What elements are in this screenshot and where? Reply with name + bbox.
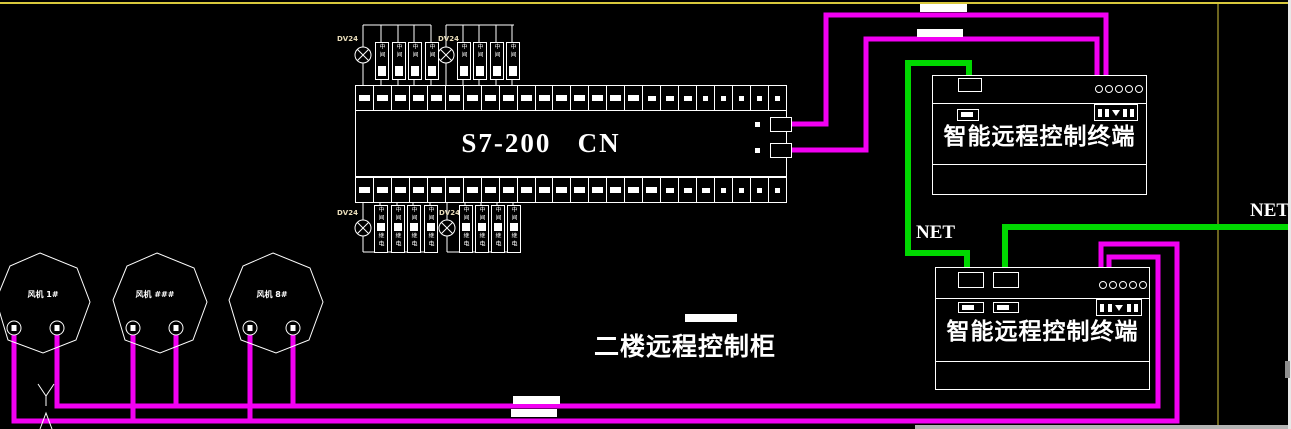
terminal-mark [721,96,726,101]
relay-glyph: 间 [461,52,467,59]
fan-terminal-pin [248,325,253,331]
terminal-cell [553,86,571,110]
plc-indicator-dot [755,122,760,127]
remote-terminal-box-2: 智能远程控制终端 [935,267,1150,390]
terminal-mark [666,96,674,101]
relay-glyph: 中 [411,207,417,214]
terminal-mark [556,95,567,101]
wire-tag [513,396,560,404]
relay-window [410,223,418,231]
relay-module: 中间继电 [391,205,405,253]
cabinet-title: 二楼远程控制柜 [575,327,795,363]
relay-window [493,66,501,76]
terminal-cell [571,178,589,202]
terminal-mark [521,187,532,193]
relay-module: 中间继电 [475,205,489,253]
relay-glyph: 电 [511,241,517,248]
relay-glyph: 间 [428,215,434,222]
terminal-mark [775,96,780,101]
relay-glyph: 中 [412,44,418,51]
plc-terminal-strip-top [355,85,787,111]
terminal-cell [571,86,589,110]
arrow-down-icon [1115,305,1123,311]
terminal-mark [467,95,478,101]
relay-glyph: 间 [511,215,517,222]
relay-module: 中间 [408,42,422,80]
terminal-mark [592,95,603,101]
terminal-cell [751,178,769,202]
net-port-2 [993,272,1019,288]
plc-comm-port-1 [770,117,792,132]
terminal-mark [574,187,585,193]
terminal-mark [503,95,514,101]
wire-mark-y-right [46,384,54,396]
terminal-mark [539,95,550,101]
terminal-cell [697,178,715,202]
terminal-cell [607,178,625,202]
terminal-mark [757,188,762,193]
terminal-cell [643,86,661,110]
relay-glyph: 中 [479,207,485,214]
terminal-mark [648,96,656,101]
relay-window [377,223,385,231]
connector-ring [1099,281,1107,289]
terminal-cell [625,178,643,202]
relay-module: 中间 [490,42,504,80]
terminal-mark [521,95,532,101]
relay-glyph: 继 [463,233,469,240]
terminal-mark [739,96,744,101]
relay-glyph: 间 [495,215,501,222]
plc-terminal-strip-bottom [355,177,787,203]
dip-switch [1123,109,1127,117]
relay-glyph: 电 [378,241,384,248]
terminal-mark [646,187,657,193]
relay-glyph: 中 [477,44,483,51]
relay-glyph: 中 [495,207,501,214]
terminal-cell [643,178,661,202]
terminal-cell [715,178,733,202]
connector-ring [1129,281,1137,289]
relay-module: 中间 [392,42,406,80]
relay-glyph: 间 [411,215,417,222]
relay-glyph: 中 [429,44,435,51]
terminal-mark [666,188,674,193]
terminal-cell [733,86,751,110]
terminal-mark [485,95,496,101]
terminal-cell [446,178,464,202]
terminal-cell [769,86,786,110]
relay-window [394,223,402,231]
relay-glyph: 间 [379,52,385,59]
terminal-cell [661,178,679,202]
fan-octagon [113,253,207,353]
connector-ring [1105,85,1113,93]
terminal-cell [464,178,482,202]
divider [933,164,1146,165]
relay-module: 中间继电 [459,205,473,253]
relay-glyph: 间 [477,52,483,59]
dv24-power-label: DV24 [337,209,358,217]
terminal-mark [556,187,567,193]
terminal-cell [589,178,607,202]
relay-window [411,66,419,76]
relay-glyph: 间 [378,215,384,222]
relay-glyph: 继 [395,233,401,240]
terminal-mark [684,188,692,193]
terminal-mark [721,188,726,193]
terminal-mark [539,187,550,193]
terminal-cell [625,86,643,110]
dv24-power-label: DV24 [438,35,459,43]
relay-glyph: 间 [395,215,401,222]
terminal-cell [553,178,571,202]
dip-switch [1127,304,1131,312]
relay-glyph: 继 [378,233,384,240]
terminal-mark [413,187,424,193]
relay-glyph: 中 [461,44,467,51]
relay-glyph: 中 [463,207,469,214]
relay-module: 中间继电 [507,205,521,253]
terminal-mark [702,188,710,193]
terminal-cell [392,86,410,110]
relay-window [428,66,436,76]
dip-switch [1098,109,1102,117]
terminal-cell [518,178,536,202]
relay-glyph: 中 [379,44,385,51]
connector-ring [1139,281,1147,289]
relay-module: 中间继电 [424,205,438,253]
terminal-cell [428,178,446,202]
terminal-mark [703,96,708,101]
arrow-down-icon [1112,110,1120,116]
terminal-cell [392,178,410,202]
relay-module: 中间 [506,42,520,80]
terminal-mark [574,95,585,101]
net-port [958,78,982,92]
dip-switch [1134,304,1138,312]
connector-ring [1095,85,1103,93]
status-bar [997,305,1009,310]
relay-glyph: 继 [428,233,434,240]
plc-comm-port-2 [770,143,792,158]
fan-terminal-pin [55,325,60,331]
fan-terminal-pin [12,325,17,331]
terminal-box-1-title: 智能远程控制终端 [933,117,1146,151]
horizontal-scrollbar[interactable] [915,425,1291,429]
terminal-cell [769,178,786,202]
terminal-mark [413,95,424,101]
wire-tag [917,29,963,37]
terminal-mark [485,187,496,193]
fan-terminal-pin [131,325,136,331]
plc-indicator-dot [755,148,760,153]
terminal-mark [684,96,692,101]
relay-glyph: 电 [395,241,401,248]
terminal-mark [449,95,460,101]
relay-module: 中间 [473,42,487,80]
fan-terminal-pin [291,325,296,331]
terminal-cell [697,86,715,110]
plc-label: S7-200 CN [461,128,620,159]
status-bar [962,305,974,310]
terminal-cell [500,86,518,110]
terminal-mark [431,187,442,193]
relay-glyph: 中 [511,207,517,214]
fan-terminal-pin [174,325,179,331]
plc-module: S7-200 CN [355,110,787,177]
relay-window [427,223,435,231]
terminal-cell [715,86,733,110]
terminal-mark [592,187,603,193]
terminal-cell [410,86,428,110]
relay-glyph: 电 [428,241,434,248]
connector-ring [1125,85,1133,93]
terminal-mark [449,187,460,193]
relay-window [462,223,470,231]
net-port-1 [958,272,984,288]
dv24-power-label: DV24 [439,209,460,217]
relay-glyph: 间 [429,52,435,59]
relay-glyph: 继 [411,233,417,240]
relay-module: 中间继电 [407,205,421,253]
relay-glyph: 中 [510,44,516,51]
terminal-mark [359,187,370,193]
relay-glyph: 中 [396,44,402,51]
fan-1-label: 风机 1# [13,289,73,300]
relay-window [476,66,484,76]
relay-window [378,66,386,76]
terminal-mark [377,95,388,101]
relay-window [478,223,486,231]
terminal-box-2-title: 智能远程控制终端 [936,312,1149,346]
fan-octagon [229,253,323,353]
terminal-mark [610,187,621,193]
terminal-cell [464,86,482,110]
relay-window [460,66,468,76]
wire-mark-y-left [38,384,46,406]
scrollbar-thumb[interactable] [1285,361,1290,378]
terminal-cell [536,178,554,202]
relay-glyph: 间 [479,215,485,222]
dip-switch [1100,304,1104,312]
terminal-cell [679,178,697,202]
terminal-cell [589,86,607,110]
wire-tag [685,314,737,322]
remote-terminal-box-1: 智能远程控制终端 [932,75,1147,195]
dv24-power-label: DV24 [337,35,358,43]
fan-3-label: 风机 8# [242,289,302,300]
relay-window [395,66,403,76]
connector-ring [1115,85,1123,93]
relay-glyph: 中 [494,44,500,51]
connector-ring [1109,281,1117,289]
terminal-cell [410,178,428,202]
terminal-mark [739,188,744,193]
relay-glyph: 中 [395,207,401,214]
terminal-cell [374,178,392,202]
relay-glyph: 中 [378,207,384,214]
relay-window [510,223,518,231]
terminal-mark [431,95,442,101]
terminal-cell [374,86,392,110]
relay-module: 中间 [425,42,439,80]
connector-ring [1135,85,1143,93]
terminal-cell [500,178,518,202]
terminal-cell [518,86,536,110]
connector-ring [1119,281,1127,289]
terminal-mark [395,187,406,193]
relay-module: 中间 [457,42,471,80]
dip-switch [1105,109,1109,117]
terminal-mark [628,187,639,193]
terminal-mark [628,95,639,101]
relay-glyph: 继 [511,233,517,240]
relay-glyph: 间 [463,215,469,222]
terminal-cell [446,86,464,110]
terminal-cell [661,86,679,110]
terminal-cell [482,86,500,110]
terminal-cell [482,178,500,202]
relay-window [494,223,502,231]
fan-2-label: 风机 ### [125,289,185,300]
relay-glyph: 继 [495,233,501,240]
terminal-cell [607,86,625,110]
terminal-cell [751,86,769,110]
net-label-2: NET [1250,200,1289,222]
terminal-mark [377,187,388,193]
relay-glyph: 电 [479,241,485,248]
terminal-cell [679,86,697,110]
signal-connectors [1095,85,1145,93]
wire-tag [511,409,557,417]
relay-window [509,66,517,76]
terminal-mark [757,96,762,101]
relay-glyph: 电 [495,241,501,248]
relay-glyph: 间 [510,52,516,59]
relay-module: 中间 [375,42,389,80]
relay-glyph: 间 [396,52,402,59]
signal-connectors [1099,281,1149,289]
terminal-mark [467,187,478,193]
relay-glyph: 电 [463,241,469,248]
terminal-mark [395,95,406,101]
divider [936,361,1149,362]
relay-glyph: 电 [411,241,417,248]
terminal-mark [359,95,370,101]
relay-glyph: 继 [479,233,485,240]
relay-glyph: 间 [494,52,500,59]
terminal-cell [356,178,374,202]
dip-switch [1130,109,1134,117]
dip-switch [1108,304,1112,312]
terminal-cell [733,178,751,202]
cad-drawing-canvas[interactable]: S7-200 CN 智能远程控制终端 智能远程控制终端 [0,0,1291,429]
terminal-cell [428,86,446,110]
relay-module: 中间继电 [374,205,388,253]
terminal-mark [503,187,514,193]
net-label-1: NET [916,222,955,244]
relay-module: 中间继电 [491,205,505,253]
terminal-mark [775,188,780,193]
terminal-cell [356,86,374,110]
terminal-mark [610,95,621,101]
relay-glyph: 中 [428,207,434,214]
terminal-cell [536,86,554,110]
wire-tag [920,4,967,12]
relay-glyph: 间 [412,52,418,59]
